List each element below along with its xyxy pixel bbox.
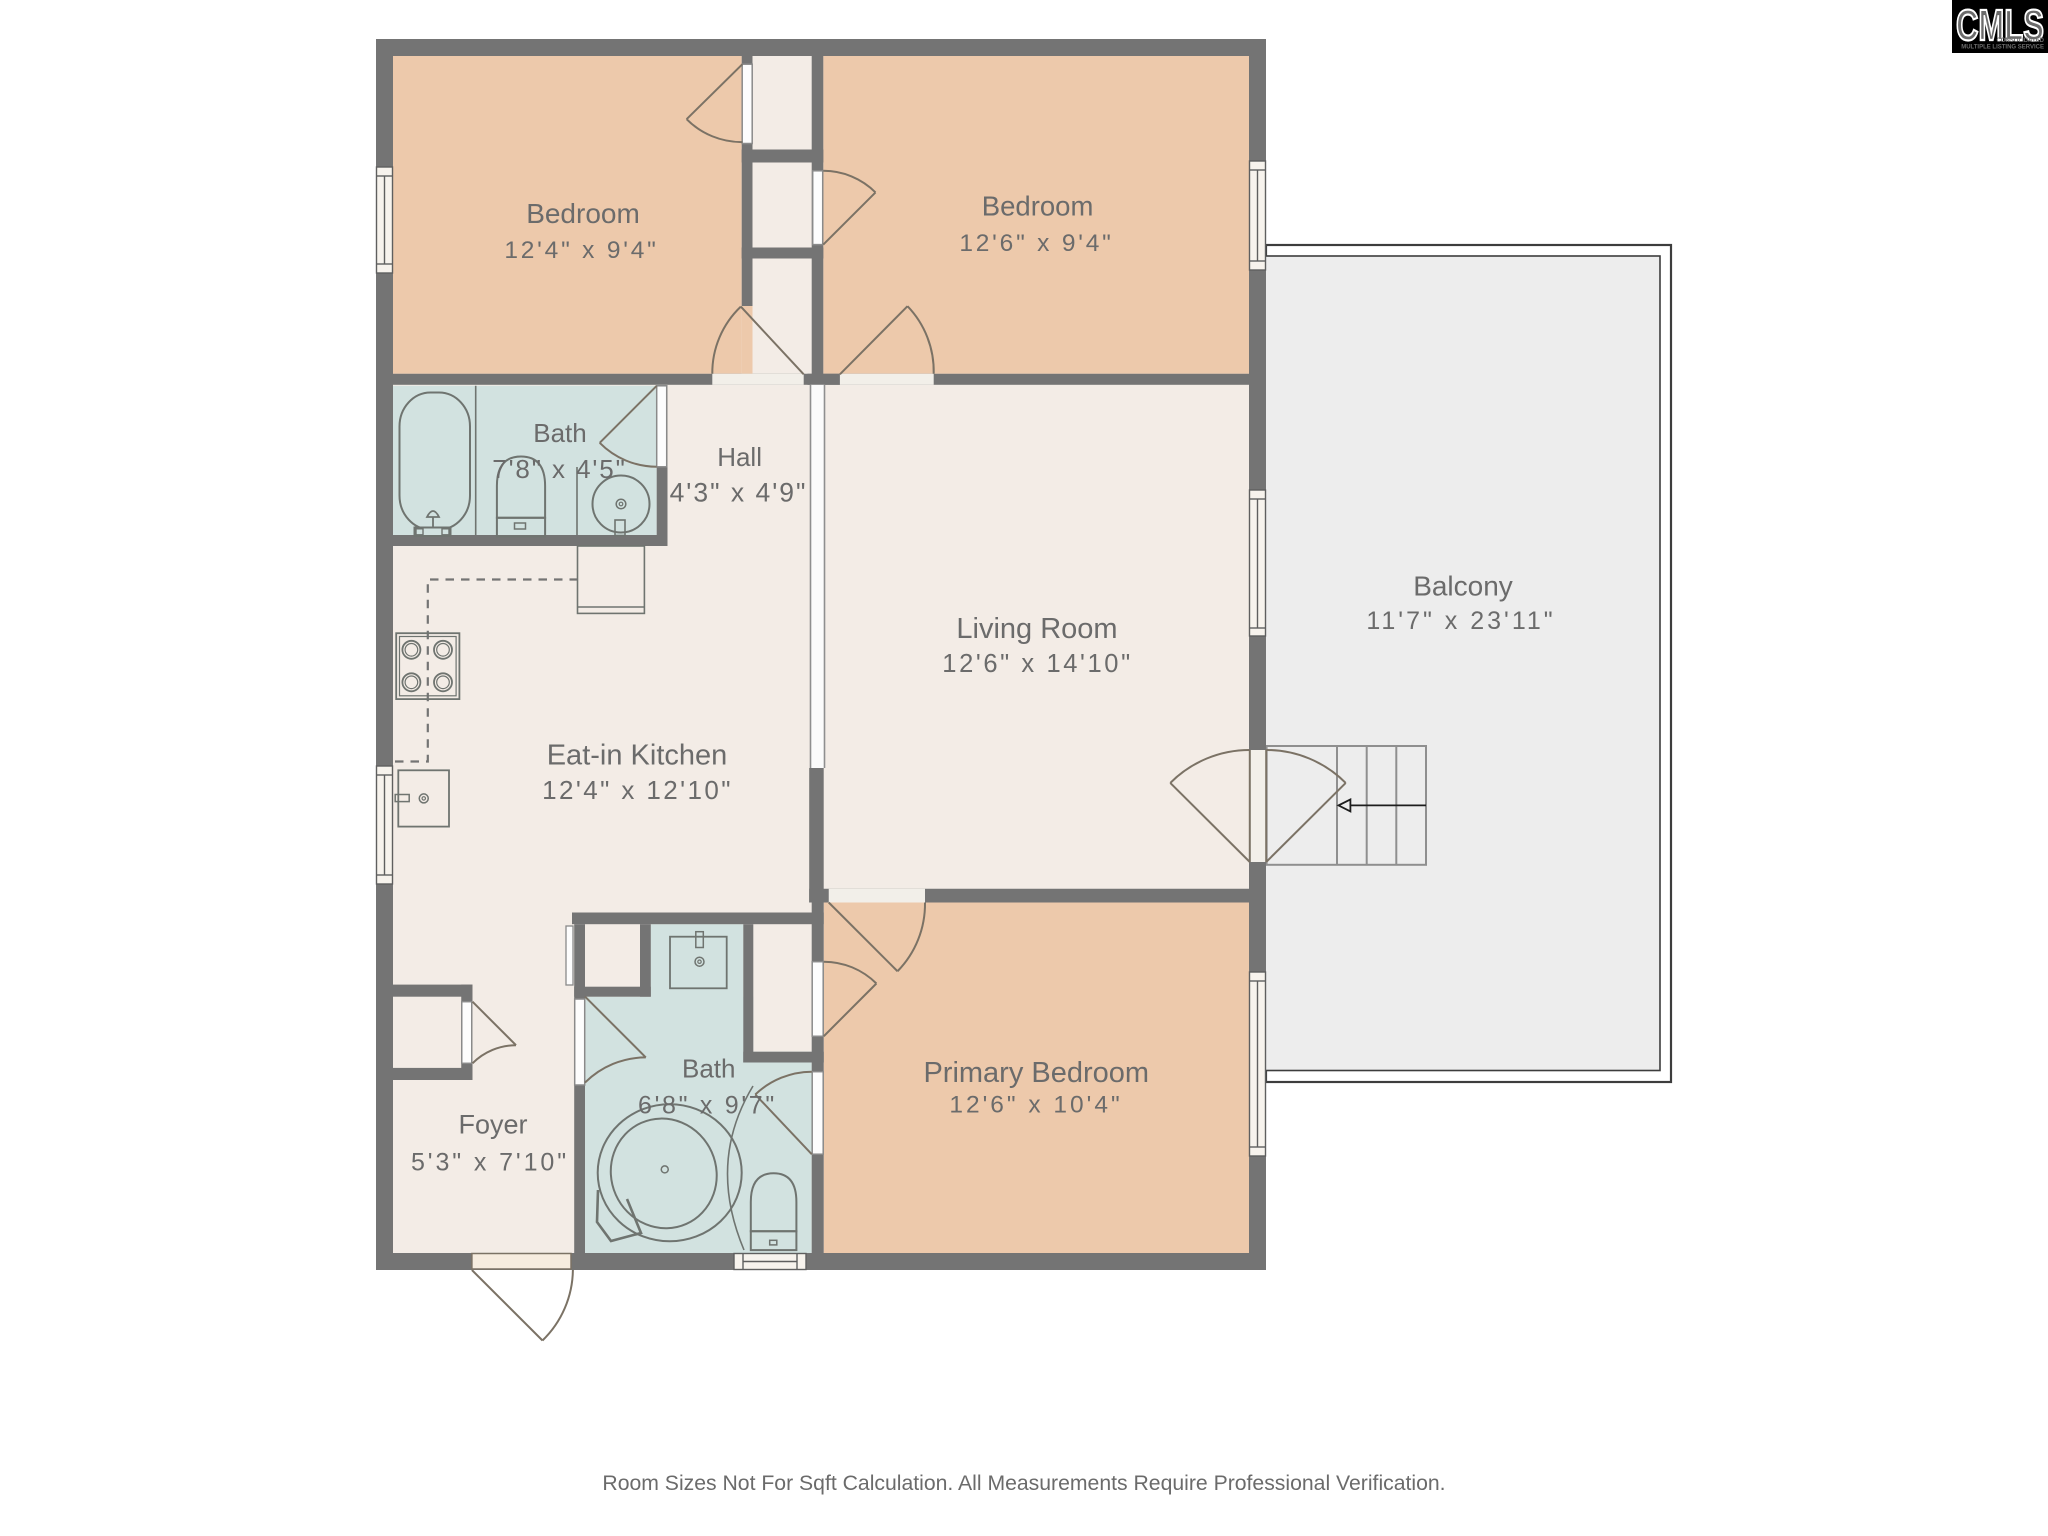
svg-text:Bath: Bath <box>682 1054 736 1084</box>
svg-text:Living Room: Living Room <box>956 613 1117 645</box>
svg-text:Room Sizes Not For Sqft Calcul: Room Sizes Not For Sqft Calculation. All… <box>602 1472 1445 1495</box>
svg-text:5'3" x 7'10": 5'3" x 7'10" <box>411 1149 569 1177</box>
svg-text:11'7" x 23'11": 11'7" x 23'11" <box>1366 607 1555 635</box>
svg-text:Balcony: Balcony <box>1413 571 1513 602</box>
svg-text:12'6" x 9'4": 12'6" x 9'4" <box>959 230 1113 257</box>
svg-text:4'3" x 4'9": 4'3" x 4'9" <box>670 478 808 508</box>
svg-text:12'6" x 14'10": 12'6" x 14'10" <box>942 650 1132 678</box>
svg-text:12'6" x 10'4": 12'6" x 10'4" <box>949 1092 1122 1119</box>
svg-text:Bath: Bath <box>533 418 587 448</box>
svg-text:Foyer: Foyer <box>458 1110 527 1140</box>
svg-text:6'8" x 9'7": 6'8" x 9'7" <box>638 1092 777 1120</box>
svg-text:12'4" x 9'4": 12'4" x 9'4" <box>504 237 658 264</box>
svg-text:7'8" x 4'5": 7'8" x 4'5" <box>492 454 627 484</box>
svg-text:MULTIPLE LISTING SERVICE: MULTIPLE LISTING SERVICE <box>1961 45 2044 51</box>
svg-text:Bedroom: Bedroom <box>982 191 1094 222</box>
svg-text:Primary Bedroom: Primary Bedroom <box>923 1057 1149 1089</box>
svg-text:12'4" x 12'10": 12'4" x 12'10" <box>542 775 733 805</box>
svg-text:Bedroom: Bedroom <box>526 198 640 229</box>
svg-text:Hall: Hall <box>717 442 762 472</box>
svg-text:CONSOLIDATED: CONSOLIDATED <box>1996 38 2044 44</box>
svg-text:Eat-in Kitchen: Eat-in Kitchen <box>547 740 728 772</box>
